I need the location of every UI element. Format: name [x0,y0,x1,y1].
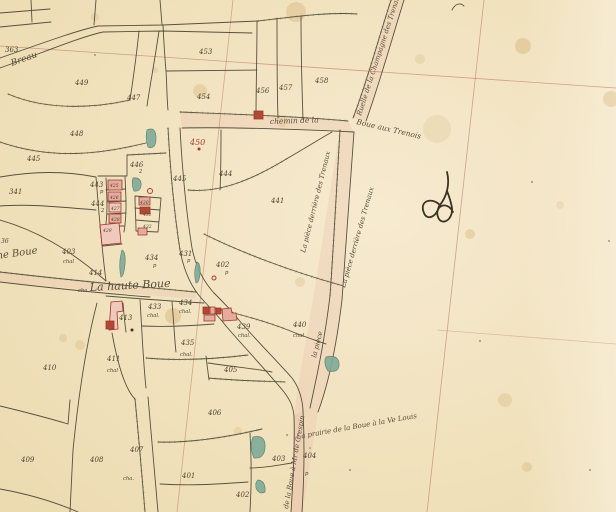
parcel-number-label: 443 [89,181,104,189]
ink-speck [608,240,610,242]
parcel-number-label: 448 [69,130,84,138]
ink-speck [94,54,96,56]
paper-stain [465,229,475,239]
parcel-number-label: 458 [314,77,329,85]
parcel-number-label: 401 [181,472,195,480]
parcel-sub-label: chal [107,368,118,374]
cadastral-map: 3634494474484453414534544564574584464454… [0,0,616,512]
parcel-number-label: 431 [178,250,192,258]
parcel-number-label: 434 [144,254,158,262]
parcel-number-label: 406 [207,409,222,417]
parcel-number-label: 403 [61,248,76,256]
parcel-number-label: 431 [142,212,152,218]
well-dot [131,329,134,332]
parcel-number-label: 426 [109,195,119,201]
parcel-sub-label: chal. [238,333,251,339]
parcel-number-label: 453 [198,48,213,56]
parcel-number-label: 427 [110,206,120,212]
paper-stain [75,340,85,350]
parcel-number-label: 413 [118,314,133,322]
building [216,308,221,314]
pond [251,436,265,458]
paper-stain [295,277,305,287]
parcel-sub-label: 2 [138,169,142,175]
ink-speck [286,434,288,436]
parcel-number-label: 403 [271,455,286,463]
parcel-number-label: 439 [236,323,251,331]
parcel-sub-label: chal [293,333,304,339]
parcel-number-label: 432 [142,224,152,230]
parcel-number-label: 425 [109,183,119,189]
parcel-number-label: 434 [178,299,192,307]
parcel-sub-label: cha. [123,476,134,482]
parcel-sub-label: chal [63,259,74,265]
parcel-number-label: 36 [1,238,9,245]
building [106,321,114,329]
parcel-sub-label: 2 [100,208,104,214]
parcel-number-label: 445 [172,175,187,183]
parcel-number-label: 430 [139,200,149,206]
parcel-number-label: 402 [215,261,230,269]
parcel-number-label: 456 [255,87,270,95]
place-name-label: chemin de la [270,115,319,126]
red-survey-dot [198,148,201,151]
parcel-number-label: 428 [110,217,120,223]
building [210,307,215,314]
parcel-sub-label: chal. [179,309,192,315]
parcel-number-label: 445 [26,155,41,163]
ink-speck [589,469,591,471]
parcel-number-label: 444 [218,170,232,178]
red-annotation: 537 [204,311,211,315]
paper-stain [498,393,512,407]
parcel-number-label: 441 [270,197,284,205]
parcel-number-label: 449 [74,79,89,87]
cadastral-map-svg: 3634494474484453414534544564574584464454… [0,0,616,512]
ink-speck [479,340,481,342]
parcel-number-label: 446 [129,161,144,169]
parcel-number-label: 444 [90,200,104,208]
parcel-number-label: 404 [302,452,316,460]
building [254,111,263,119]
red-annotation: 450 [189,138,205,147]
parcel-number-label: 454 [196,93,210,101]
paper-stain [522,462,532,472]
paper-stain [59,334,67,342]
paper-stain [415,54,425,64]
parcel-number-label: 402 [235,491,250,499]
parcel-number-label: 363 [5,46,19,54]
parcel-number-label: 433 [147,303,162,311]
parcel-number-label: 405 [223,366,238,374]
building [204,315,215,321]
ink-speck [349,469,351,471]
paper-stain [286,2,306,22]
parcel-number-label: 341 [9,188,22,196]
parcel-number-label: 435 [180,339,195,347]
parcel-number-label: 407 [129,446,144,454]
building [100,223,121,245]
paper-stain [515,38,531,54]
parcel-number-label: 414 [88,269,102,277]
parcel-sub-label: cha. [78,288,89,294]
parcel-number-label: 457 [278,84,293,92]
ink-speck [531,181,533,183]
pond [325,356,339,371]
parcel-sub-label: chal. [180,352,193,358]
paper-stain [423,115,451,143]
parcel-number-label: 447 [126,94,141,102]
parcel-sub-label: chal. [147,313,160,319]
parcel-number-label: 410 [42,364,57,372]
parcel-number-label: 440 [292,321,307,329]
pond [146,129,156,148]
pond [132,178,141,191]
parcel-number-label: 429 [102,228,112,234]
paper-stain [556,201,564,209]
parcel-number-label: 409 [20,456,35,464]
parcel-number-label: 408 [89,456,104,464]
parcel-number-label: 411 [106,355,120,363]
